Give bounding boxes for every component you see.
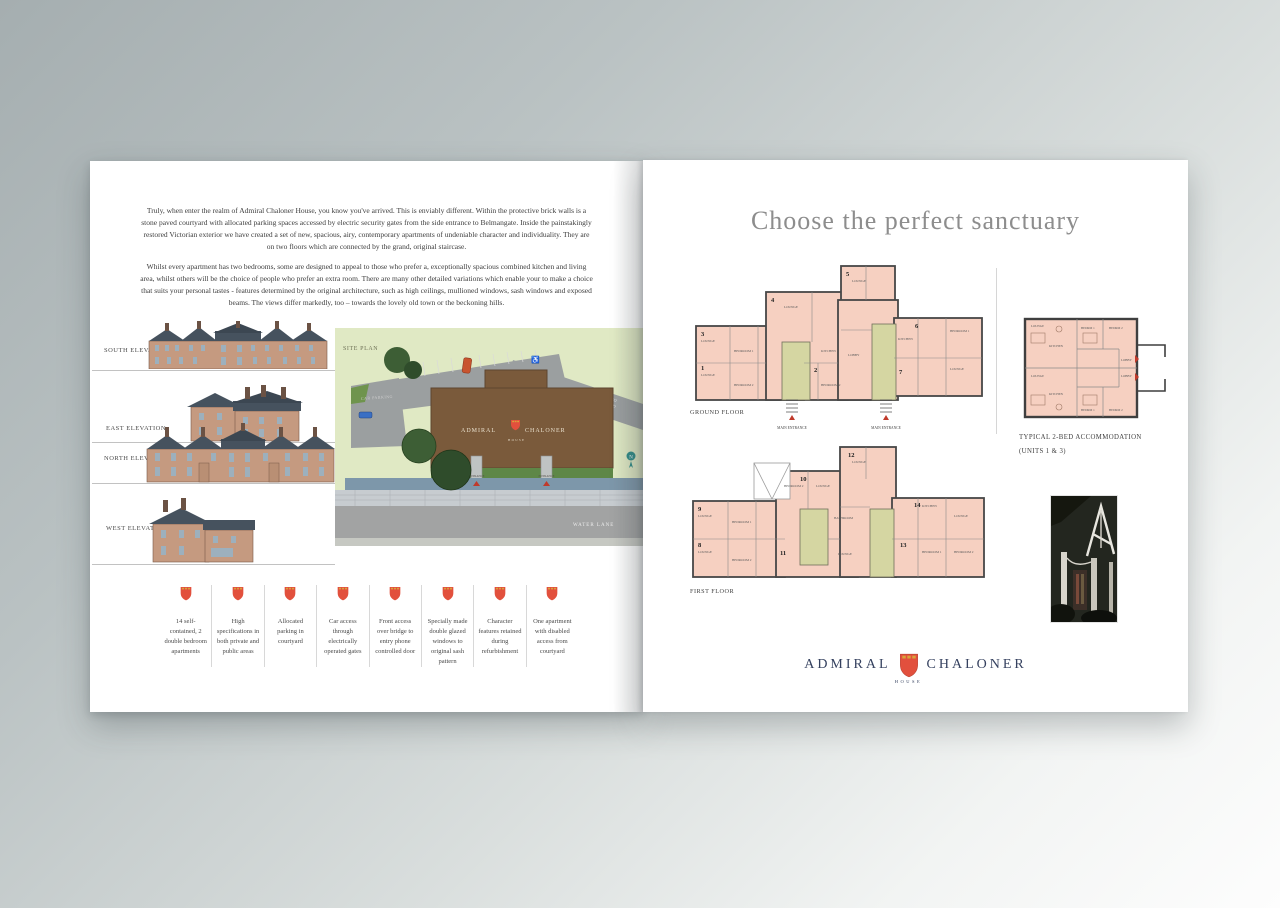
entrance-label-2: ENTRANCE: [539, 474, 555, 478]
feature-item-6: Specially made double glazed windows to …: [421, 585, 473, 667]
feature-item-8: One apartment with disabled access from …: [526, 585, 578, 667]
room-label: LOUNGE: [1031, 374, 1044, 378]
stone-wall: [335, 490, 643, 506]
room-label: BEDROOM 2: [954, 550, 974, 554]
room-label: BEDROOM 1: [950, 329, 970, 333]
feature-item-5: Front access over bridge to entry phone …: [369, 585, 421, 667]
room-label: LOUNGE: [784, 305, 798, 309]
room-label: LOUNGE: [852, 279, 866, 283]
typical-unit-caption-1: TYPICAL 2-BED ACCOMMODATION: [1019, 434, 1142, 441]
main-entrance-label-2: MAIN ENTRANCE: [871, 426, 901, 430]
building-name-right: CHALONER: [525, 428, 566, 434]
brochure-left-page: Truly, when enter the realm of Admiral C…: [90, 161, 643, 712]
shield-icon: [545, 585, 559, 601]
ground-line-north: [92, 483, 335, 484]
shield-icon: [493, 585, 507, 601]
feature-caption: Specially made double glazed windows to …: [425, 617, 470, 667]
feature-item-2: High specifications in both private and …: [211, 585, 263, 667]
ground-floor-label: GROUND FLOOR: [690, 409, 745, 416]
shield-icon: [283, 585, 297, 601]
column-divider: [996, 268, 997, 434]
room-label: BEDROOM 2: [732, 558, 752, 562]
room-label: LOUNGE: [698, 550, 712, 554]
room-label: BEDROOM 2: [821, 383, 841, 387]
room-label: LOBBY: [1121, 374, 1133, 378]
shield-icon: [179, 585, 193, 601]
feature-item-3: Allocated parking in courtyard: [264, 585, 316, 667]
typical-unit-caption-2: (UNITS 1 & 3): [1019, 448, 1066, 455]
feature-caption: High specifications in both private and …: [215, 617, 260, 657]
room-label: LOUNGE: [816, 484, 830, 488]
room-label: LOUNGE: [838, 552, 852, 556]
room-label: BEDRM 1: [1081, 326, 1095, 330]
room-label: BEDROOM 2: [734, 383, 754, 387]
shield-icon: [388, 585, 402, 601]
room-label: LOBBY: [848, 353, 860, 357]
page-title: Choose the perfect sanctuary: [643, 206, 1188, 236]
entrance-label-1: ENTRANCE: [469, 474, 485, 478]
feature-caption: 14 self-contained, 2 double bedroom apar…: [163, 617, 208, 657]
ground-line-south: [92, 370, 335, 371]
room-label: KITCHEN: [898, 337, 913, 341]
unit-number: 13: [900, 542, 907, 549]
unit-number: 1: [701, 365, 704, 372]
stream: [345, 478, 643, 490]
disabled-bay-icon: ♿: [531, 355, 540, 364]
intro-paragraph-2: Whilst every apartment has two bedrooms,…: [140, 261, 593, 309]
red-car: [462, 358, 472, 374]
building-name-left: ADMIRAL: [461, 428, 496, 434]
main-entrance-label-1: MAIN ENTRANCE: [777, 426, 807, 430]
logo-shield-icon: [898, 652, 920, 678]
room-label: KITCHEN: [1049, 344, 1064, 348]
room-label: LOUNGE: [701, 373, 715, 377]
room-label: KITCHEN: [821, 349, 836, 353]
room-label: LOUNGE: [701, 339, 715, 343]
room-label: LOUNGE: [950, 367, 964, 371]
room-label: LOUNGE: [852, 460, 866, 464]
unit-number: 12: [848, 452, 855, 459]
admiral-chaloner-logo: ADMIRAL HOUSE CHALONER: [643, 652, 1188, 678]
feature-item-7: Character features retained during refur…: [473, 585, 525, 667]
logo-word-admiral: ADMIRAL: [804, 657, 890, 673]
room-label: BEDRM 2: [1109, 408, 1123, 412]
logo-sub-house: HOUSE: [890, 679, 928, 684]
room-label: LOBBY: [1121, 358, 1133, 362]
typical-unit-plan: LOUNGE KITCHEN BEDRM 1 BEDRM 2 LOUNGE KI…: [1019, 315, 1169, 427]
room-label: KITCHEN: [922, 504, 937, 508]
water-lane-label: WATER LANE: [573, 523, 614, 528]
feature-caption: Allocated parking in courtyard: [268, 617, 313, 647]
north-elevation-drawing: [143, 423, 338, 483]
room-label: BEDRM 2: [1109, 326, 1123, 330]
first-floor-label: FIRST FLOOR: [690, 588, 734, 595]
feature-caption: One apartment with disabled access from …: [530, 617, 575, 657]
room-label: BEDROOM 1: [922, 550, 942, 554]
site-plan-label: SITE PLAN: [343, 346, 378, 352]
porch-photo: [1051, 496, 1117, 622]
room-label: LOUNGE: [1031, 324, 1044, 328]
feature-caption: Character features retained during refur…: [477, 617, 522, 657]
unit-number: 14: [914, 502, 921, 509]
site-plan: SITE PLAN MAIN ACCESS TO BELMANGATE RD ♿…: [335, 328, 643, 546]
logo-word-chaloner: CHALONER: [927, 657, 1027, 673]
brochure-right-page: Choose the perfect sanctuary 3 1: [643, 160, 1188, 712]
feature-item-1: 14 self-contained, 2 double bedroom apar…: [160, 585, 211, 667]
room-label: LOUNGE: [698, 514, 712, 518]
shield-icon: [231, 585, 245, 601]
room-label: BEDROOM 1: [734, 349, 754, 353]
unit-number: 11: [780, 550, 786, 557]
room-label: LOUNGE: [954, 514, 968, 518]
room-label: BEDROOM 1: [732, 520, 752, 524]
blue-car: [359, 412, 372, 418]
building-sub: HOUSE: [508, 438, 526, 442]
first-floor-plan: 9 8 10 11 12 14 13 LOUNGE LOUNGE LOUNGE …: [688, 443, 988, 595]
intro-paragraph-1: Truly, when enter the realm of Admiral C…: [140, 205, 593, 253]
ground-line-west: [92, 564, 335, 565]
unit-number: 10: [800, 476, 807, 483]
room-label: BATHROOM: [834, 516, 853, 520]
shield-icon: [336, 585, 350, 601]
room-label: BEDROOM 2: [784, 484, 804, 488]
room-label: BEDRM 1: [1081, 408, 1095, 412]
unit-number: 2: [814, 367, 817, 374]
feature-caption: Front access over bridge to entry phone …: [373, 617, 418, 657]
page-fold-shadow: [613, 161, 643, 712]
shield-icon: [441, 585, 455, 601]
west-elevation-drawing: [147, 498, 257, 563]
water-lane-road: [335, 506, 643, 538]
ground-floor-plan: 3 1 4 2 5 6 7 LOUNGE LOUNGE LOUNGE LOUNG…: [688, 260, 988, 432]
south-elevation-drawing: [145, 321, 331, 369]
features-row: 14 self-contained, 2 double bedroom apar…: [160, 585, 578, 667]
feature-item-4: Car access through electrically operated…: [316, 585, 368, 667]
feature-caption: Car access through electrically operated…: [320, 617, 365, 657]
room-label: KITCHEN: [1049, 392, 1064, 396]
